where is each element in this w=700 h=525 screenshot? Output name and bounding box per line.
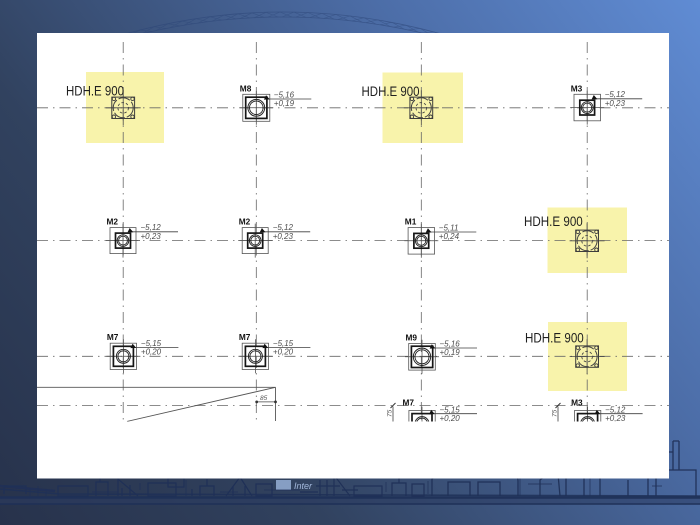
svg-text:M7: M7 xyxy=(239,332,251,342)
svg-text:−5,12: −5,12 xyxy=(273,223,294,232)
svg-text:Inter: Inter xyxy=(294,481,313,491)
svg-text:+0,20: +0,20 xyxy=(141,348,162,357)
svg-text:+0,24: +0,24 xyxy=(439,232,460,241)
svg-text:M3: M3 xyxy=(571,83,583,93)
svg-text:−5,12: −5,12 xyxy=(141,223,162,232)
svg-text:M7: M7 xyxy=(403,397,415,407)
svg-text:−5,15: −5,15 xyxy=(141,339,162,348)
svg-text:−5,12: −5,12 xyxy=(605,90,626,99)
svg-text:−5,12: −5,12 xyxy=(605,405,626,414)
svg-text:85: 85 xyxy=(260,395,268,402)
svg-text:+0,23: +0,23 xyxy=(273,232,294,241)
svg-text:−5,11: −5,11 xyxy=(439,223,459,232)
svg-text:M2: M2 xyxy=(107,216,119,226)
svg-text:HDH.E 900: HDH.E 900 xyxy=(524,213,583,229)
svg-text:+0,23: +0,23 xyxy=(141,232,162,241)
svg-text:+0,19: +0,19 xyxy=(440,348,461,357)
svg-text:−5,15: −5,15 xyxy=(440,405,461,414)
svg-text:M3: M3 xyxy=(571,397,583,407)
svg-text:M2: M2 xyxy=(239,216,251,226)
svg-text:75: 75 xyxy=(552,409,559,417)
svg-text:HDH.E 900: HDH.E 900 xyxy=(525,330,584,346)
svg-text:+0,20: +0,20 xyxy=(273,348,294,357)
svg-text:75: 75 xyxy=(387,409,394,417)
svg-text:−5,16: −5,16 xyxy=(440,339,461,348)
svg-text:−5,16: −5,16 xyxy=(274,90,295,99)
svg-text:HDH.E 900: HDH.E 900 xyxy=(362,83,420,99)
svg-text:+0,23: +0,23 xyxy=(605,99,626,108)
svg-text:−5,15: −5,15 xyxy=(273,339,294,348)
svg-text:M8: M8 xyxy=(240,84,252,94)
svg-text:+0,19: +0,19 xyxy=(274,99,295,108)
svg-text:M1: M1 xyxy=(405,217,417,227)
svg-text:M9: M9 xyxy=(406,333,418,343)
svg-text:HDH.E 900: HDH.E 900 xyxy=(66,82,124,98)
svg-text:M7: M7 xyxy=(107,332,119,342)
